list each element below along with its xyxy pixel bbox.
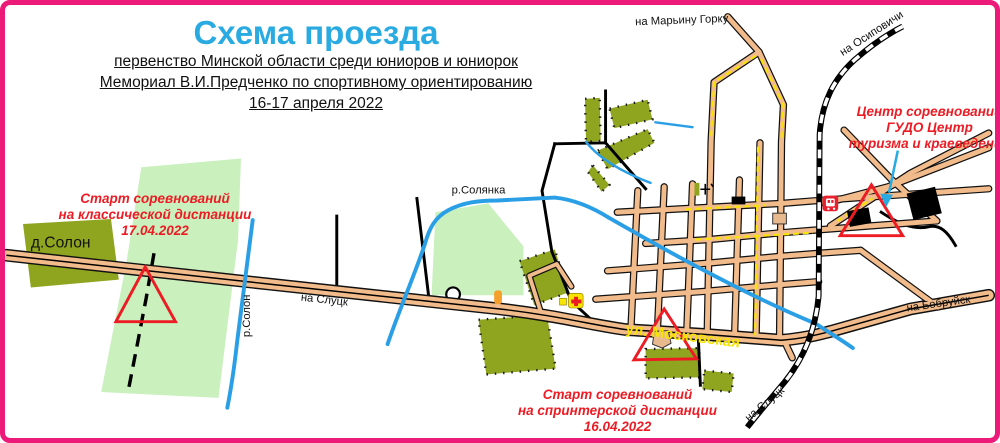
label-river-solon: р.Солон xyxy=(241,295,253,338)
annotation-event-center: Центр соревнований ГУДО Центр туризма и … xyxy=(817,104,1000,152)
annotation-start-sprint: Старт соревнований на спринтерской диста… xyxy=(505,387,730,435)
annotation-line: на классической дистанции xyxy=(40,207,270,223)
page-title: Схема проезда xyxy=(5,16,627,51)
annotation-line: Центр соревнований xyxy=(817,104,1000,120)
annotation-line: ГУДО Центр xyxy=(817,120,1000,136)
annotation-line: 17.04.2022 xyxy=(40,223,270,239)
annotation-start-classic: Старт соревнований на классической диста… xyxy=(40,191,270,239)
annotation-line: на спринтерской дистанции xyxy=(505,403,730,419)
annotation-line: туризма и краеведения xyxy=(817,136,1000,152)
subtitle-line-3: 16-17 апреля 2022 xyxy=(5,93,627,114)
label-to-osipovichi: на Осиповичи xyxy=(838,9,906,59)
label-to-bobruisk: на Бобруйск xyxy=(906,294,971,315)
scheme-frame: на Марьину Горку на Осиповичи на Бобруйс… xyxy=(0,0,1000,443)
label-river-solyanka: р.Солянка xyxy=(452,185,506,197)
subtitle-line-2: Мемориал В.И.Предченко по спортивному ор… xyxy=(5,72,627,93)
annotation-line: Старт соревнований xyxy=(40,191,270,207)
label-to-slutsk-railway: на Слуцк xyxy=(743,385,787,425)
label-to-maryina-gorka: на Марьину Горку xyxy=(635,13,729,28)
subtitle-line-1: первенство Минской области среди юниоров… xyxy=(5,51,627,72)
railway-station-icon xyxy=(823,196,839,212)
header: Схема проезда первенство Минской области… xyxy=(5,16,627,114)
first-aid-icon xyxy=(560,293,583,308)
annotation-line: 16.04.2022 xyxy=(505,419,730,435)
annotation-line: Старт соревнований xyxy=(505,387,730,403)
